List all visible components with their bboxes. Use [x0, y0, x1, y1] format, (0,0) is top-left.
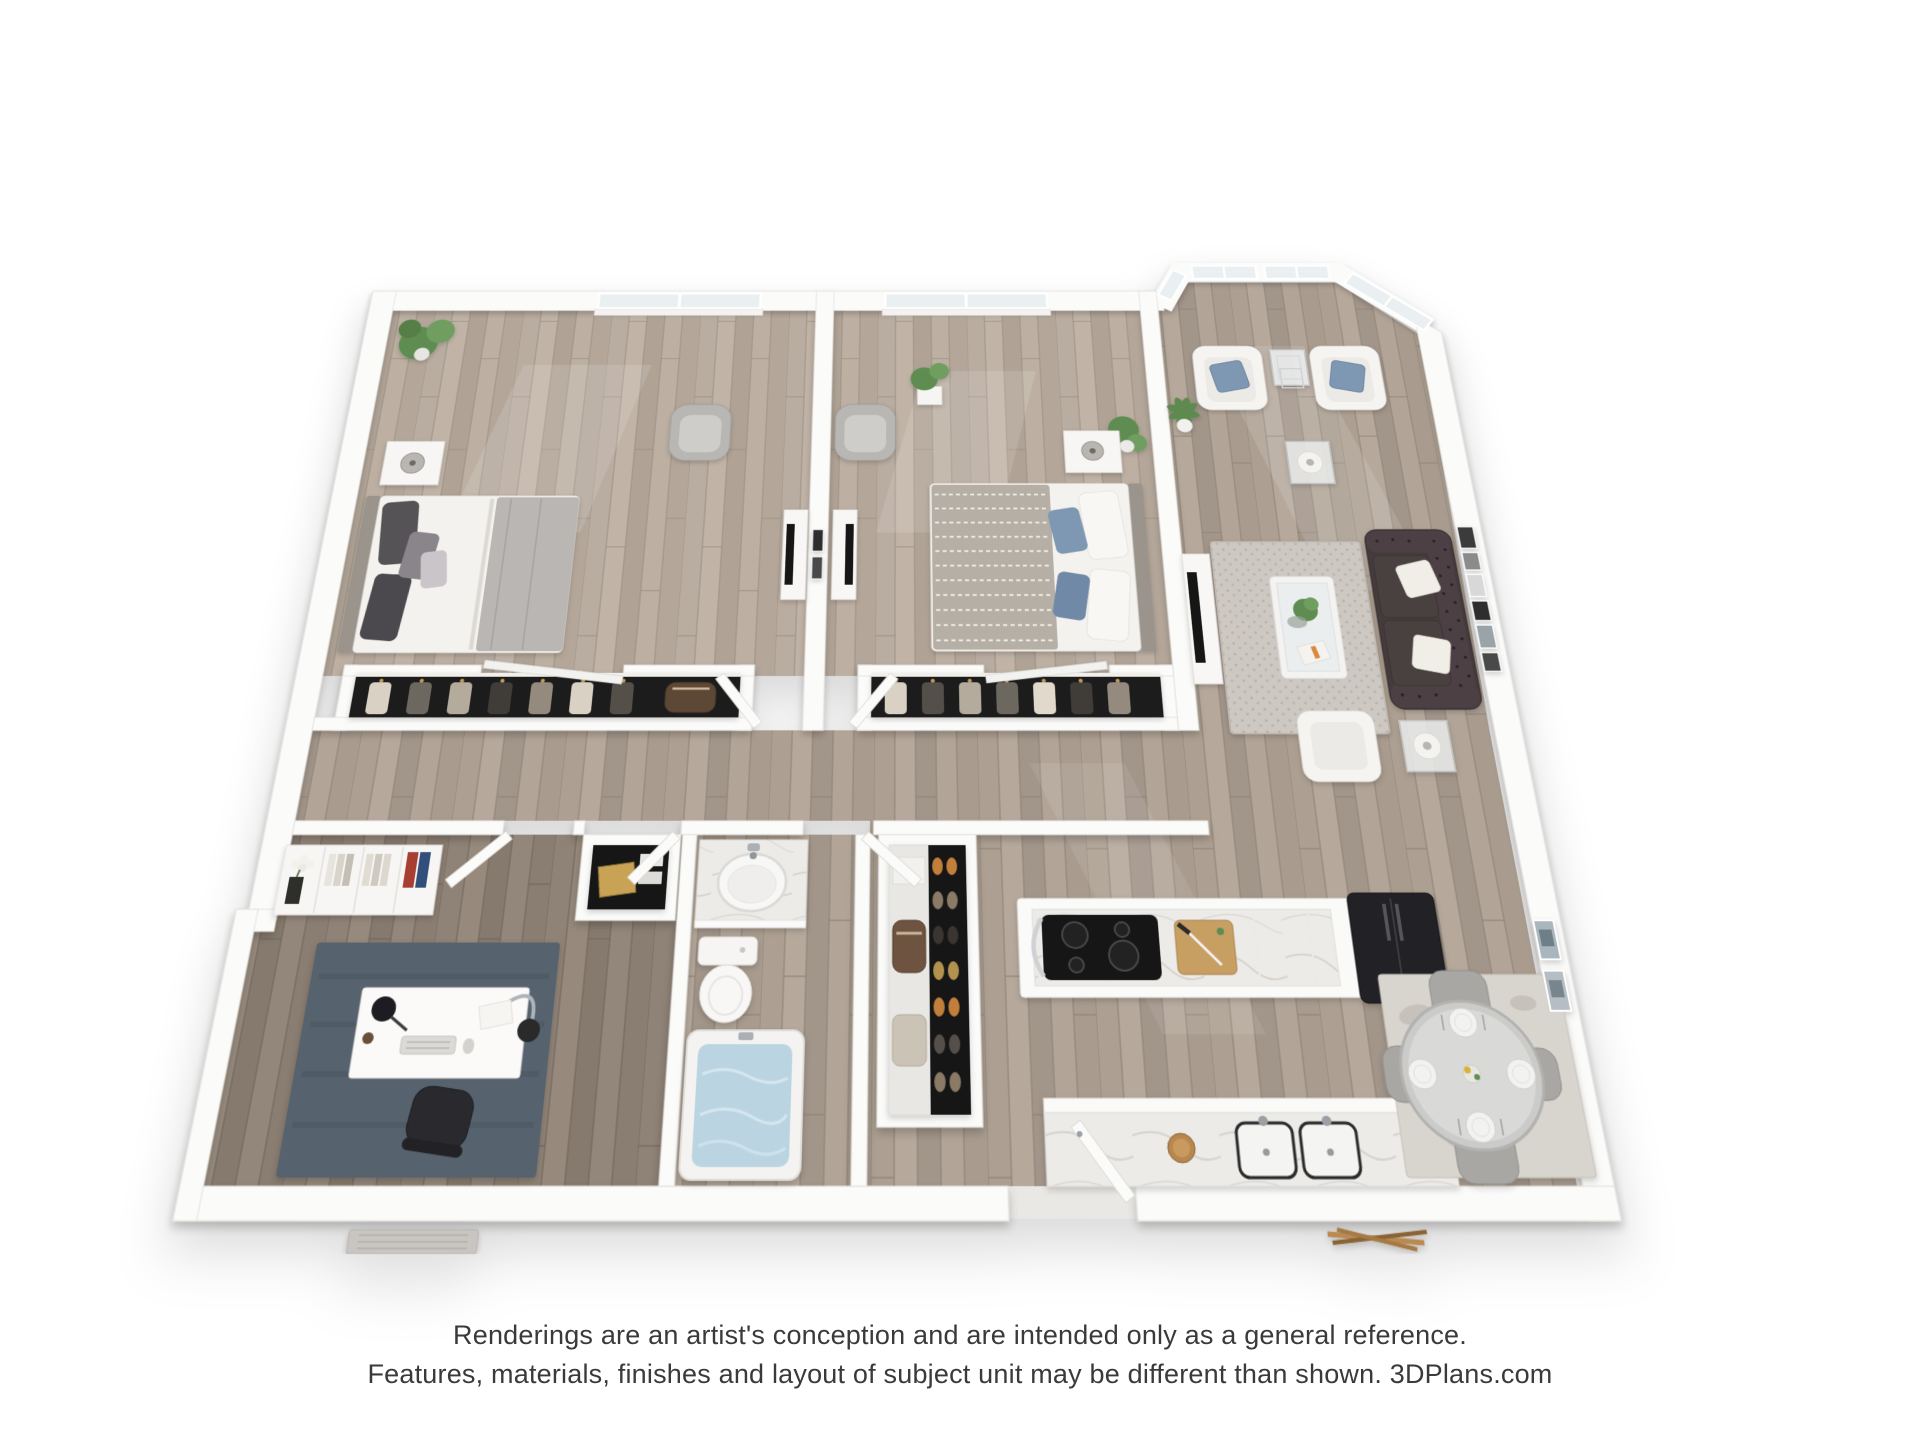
- nightstand: [380, 441, 445, 484]
- accent-chair: [835, 405, 896, 461]
- glass-nesting-tables: [1270, 350, 1310, 388]
- hallway-top-wall-right: [857, 717, 1178, 730]
- disclaimer: Renderings are an artist's conception an…: [0, 1316, 1920, 1394]
- bottom-exterior-wall-left: [173, 1186, 1009, 1221]
- tub-faucet: [738, 1032, 753, 1040]
- keyboard: [399, 1036, 456, 1054]
- bed: [930, 484, 1156, 652]
- floor-plan-page: Renderings are an artist's conception an…: [0, 0, 1920, 1440]
- desk: [348, 988, 544, 1078]
- white-armchair: [1296, 711, 1383, 782]
- wood-sticks-decor: [1327, 1230, 1429, 1250]
- bottom-exterior-wall-right: [1135, 1186, 1621, 1221]
- vanity-sink: [695, 840, 808, 928]
- nightstand: [1063, 431, 1122, 473]
- bedroom1-skylight-window: [594, 294, 764, 316]
- disclaimer-line-2: Features, materials, finishes and layout…: [0, 1355, 1920, 1394]
- duffel-bag: [893, 920, 926, 972]
- bay-armchair-right: [1308, 346, 1388, 410]
- bedroom2-skylight-window: [882, 294, 1050, 316]
- tv-console: [781, 510, 808, 600]
- accent-chair: [668, 405, 732, 461]
- floor-plan-svg: [150, 259, 1650, 1254]
- bed: [337, 496, 580, 653]
- cutting-board: [1174, 920, 1238, 974]
- cooktop: [1032, 915, 1162, 980]
- disclaimer-line-1: Renderings are an artist's conception an…: [0, 1316, 1920, 1355]
- end-table-lamp-top: [1285, 441, 1335, 483]
- doormat: [346, 1230, 479, 1254]
- backpack: [892, 1015, 926, 1066]
- bay-armchair-left: [1191, 346, 1268, 410]
- bathtub: [679, 1030, 805, 1179]
- shoe-closet: [888, 845, 971, 1115]
- media-console: [831, 510, 857, 600]
- hallway-top-wall-left: [312, 717, 752, 730]
- floor-plan-3d-render: [150, 259, 1650, 1254]
- bookshelf: [273, 845, 442, 915]
- end-table-lamp-bottom: [1399, 721, 1456, 772]
